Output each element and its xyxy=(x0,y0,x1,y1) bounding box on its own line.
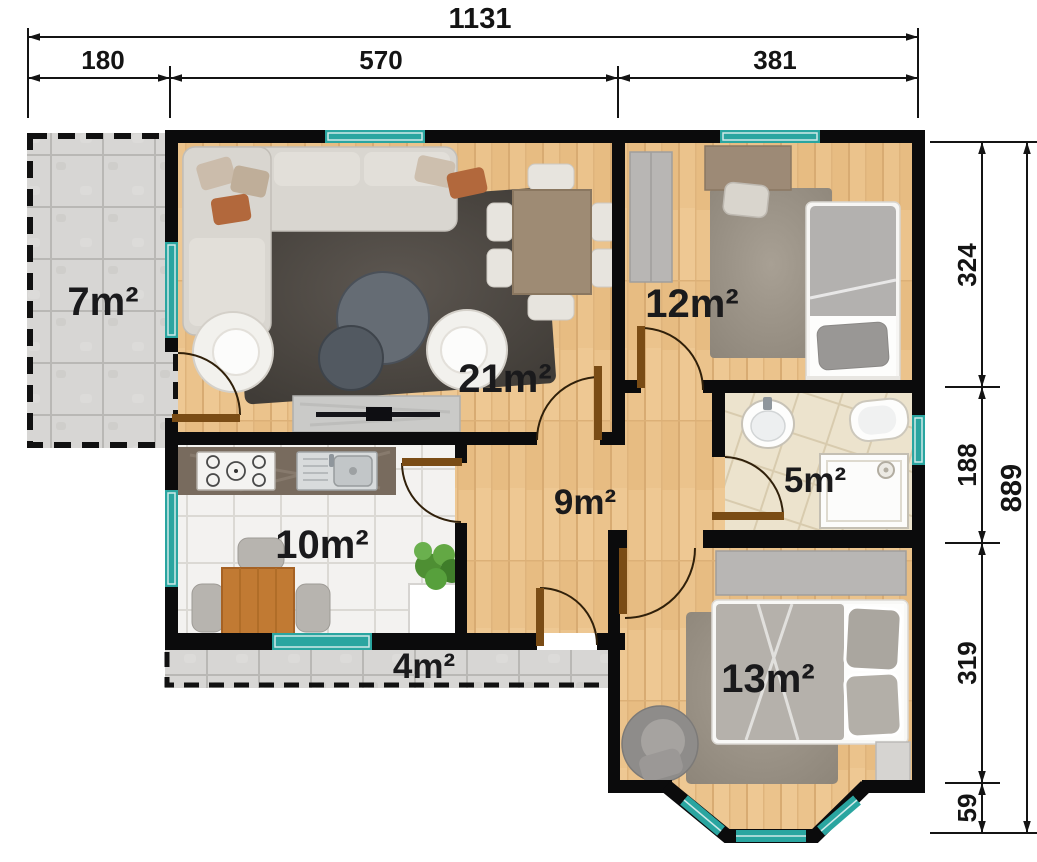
dimensions-top-labels: 1131 180 570 381 xyxy=(81,3,796,75)
tv xyxy=(366,407,392,421)
window xyxy=(720,130,820,143)
room-label-terrace-lower: 4m² xyxy=(393,647,455,686)
dim-top-seg-381: 381 xyxy=(753,45,796,75)
dim-right-seg-324: 324 xyxy=(952,243,982,287)
dim-right-seg-59: 59 xyxy=(952,794,982,823)
dim-top-seg-180: 180 xyxy=(81,45,124,75)
room-label-hallway: 9m² xyxy=(554,483,616,522)
floor-plan-svg: 7m² 21m² 12m² 5m² 9m² 10m² 4m² 13m² 1131… xyxy=(0,0,1037,862)
room-label-bedroom-small: 12m² xyxy=(645,282,738,326)
dimensions-right-labels: 324 188 319 59 889 xyxy=(952,243,1028,823)
room-label-bathroom: 5m² xyxy=(784,461,846,500)
room-label-living: 21m² xyxy=(458,357,551,401)
armchair-left xyxy=(193,312,273,392)
pillow xyxy=(844,607,901,672)
tv-stand xyxy=(293,396,460,432)
room-label-bedroom-large: 13m² xyxy=(721,657,814,701)
bed-single xyxy=(806,202,900,386)
dim-top-total: 1131 xyxy=(449,3,512,35)
pillow xyxy=(844,673,901,738)
kitchen-sink xyxy=(297,452,377,490)
armchair-bedroom xyxy=(622,706,698,783)
kitchen-table xyxy=(222,568,294,634)
window xyxy=(912,415,925,465)
dim-right-total: 889 xyxy=(996,464,1028,512)
dining-table xyxy=(513,190,591,294)
room-label-kitchen: 10m² xyxy=(275,523,368,567)
window xyxy=(325,130,425,143)
room-label-terrace-upper: 7m² xyxy=(67,280,138,324)
window xyxy=(272,633,372,650)
dim-top-seg-570: 570 xyxy=(359,45,402,75)
window xyxy=(165,490,178,587)
cooktop xyxy=(197,452,275,490)
toilet xyxy=(848,397,910,443)
nightstand xyxy=(876,742,910,782)
dim-right-seg-319: 319 xyxy=(952,641,982,684)
wardrobe-bedroom-small xyxy=(630,152,672,282)
floor-plan-page: 7m² 21m² 12m² 5m² 9m² 10m² 4m² 13m² 1131… xyxy=(0,0,1037,862)
desk-chair xyxy=(722,182,769,218)
wardrobe-bedroom-large xyxy=(716,551,906,595)
pillow xyxy=(817,322,890,371)
window xyxy=(165,242,178,338)
dim-right-seg-188: 188 xyxy=(952,443,982,486)
